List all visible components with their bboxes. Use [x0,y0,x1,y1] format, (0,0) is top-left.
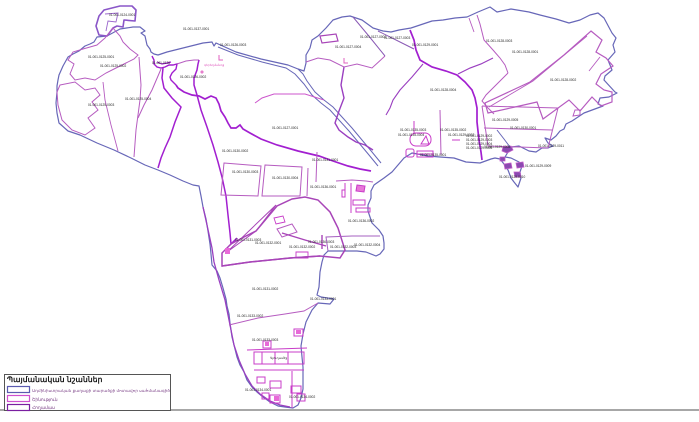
svg-text:01-001-0130-0003: 01-001-0130-0003 [232,170,258,174]
svg-text:01-001-0124-0001: 01-001-0124-0001 [109,13,135,17]
svg-text:01-001-0126: 01-001-0126 [152,61,170,65]
svg-text:01-001-0130-0001: 01-001-0130-0001 [510,126,536,130]
svg-text:01-001-0129-0010: 01-001-0129-0010 [499,175,525,179]
svg-text:01-001-0125-0002: 01-001-0125-0002 [100,64,126,68]
svg-text:01-001-0135-0001: 01-001-0135-0001 [420,153,446,157]
svg-text:01-001-0125-0003: 01-001-0125-0003 [88,103,114,107]
svg-text:01-001-0131-0002: 01-001-0131-0002 [252,287,278,291]
svg-text:01-001-0127-0001: 01-001-0127-0001 [272,126,298,130]
svg-text:01-001-0128-0003: 01-001-0128-0003 [486,39,512,43]
svg-text:Գյուղամէջ: Գյուղամէջ [270,356,287,360]
svg-text:01-001-0136-0001: 01-001-0136-0001 [310,185,336,189]
svg-text:01-001-0128-0004: 01-001-0128-0004 [430,88,456,92]
svg-text:01-001-0136-0003: 01-001-0136-0003 [308,240,334,244]
svg-text:01-001-0126-0003: 01-001-0126-0003 [220,43,246,47]
svg-text:01-001-0130-0002: 01-001-0130-0002 [222,149,248,153]
svg-text:01-001-0132-0001: 01-001-0132-0001 [255,241,281,245]
svg-text:01-001-0132-0002: 01-001-0132-0002 [289,245,315,249]
svg-text:01-001-0133-0002: 01-001-0133-0002 [237,314,263,318]
svg-text:01-001-0129-0001: 01-001-0129-0001 [412,43,438,47]
svg-text:01-001-0136-0002: 01-001-0136-0002 [348,219,374,223]
svg-text:01-001-0137-0001: 01-001-0137-0001 [183,27,209,31]
svg-text:01-001-0133-0003: 01-001-0133-0003 [252,338,278,342]
svg-text:Պայմանական նշաններ: Պայմանական նշաններ [7,375,103,384]
svg-text:01-001-0130-0004: 01-001-0130-0004 [272,176,298,180]
svg-text:01-001-0127-0003: 01-001-0127-0003 [384,36,410,40]
svg-text:01-001-0129-0011: 01-001-0129-0011 [538,144,564,148]
svg-text:01-001-0129-0007: 01-001-0129-0007 [448,133,474,137]
svg-text:Ադմինիստրական քաղաքի տարածքի մ: Ադմինիստրական քաղաքի տարածքի մոտավոր սահ… [32,388,170,393]
svg-text:Շինություն: Շինություն [32,397,58,402]
svg-text:01-001-0134-0002: 01-001-0134-0002 [289,395,315,399]
svg-text:01-001-0127-0004: 01-001-0127-0004 [335,45,361,49]
svg-text:01-001-0126-0002: 01-001-0126-0002 [180,75,206,79]
svg-text:01-001-0133-0001: 01-001-0133-0001 [310,297,336,301]
svg-text:01-001-0125-0004: 01-001-0125-0004 [125,97,151,101]
svg-text:01-001-0129-0008: 01-001-0129-0008 [484,145,510,149]
svg-text:01-001-0125-0001: 01-001-0125-0001 [88,55,114,59]
svg-text:01-001-0132-0004: 01-001-0132-0004 [354,243,380,247]
svg-text:01-001-0127-0002: 01-001-0127-0002 [360,35,386,39]
svg-text:01-001-0135-0002: 01-001-0135-0002 [440,128,466,132]
svg-text:01-001-0132-0003: 01-001-0132-0003 [330,245,356,249]
svg-text:01-001-0129-0009: 01-001-0129-0009 [525,164,551,168]
svg-text:01-001-0128-0001: 01-001-0128-0001 [512,50,538,54]
svg-text:Հողամաս: Հողամաս [32,405,55,410]
svg-text:01-001-0134-0001: 01-001-0134-0001 [245,388,271,392]
svg-text:01-001-0129-0005: 01-001-0129-0005 [492,118,518,122]
svg-text:01-001-0135-0003: 01-001-0135-0003 [400,128,426,132]
svg-text:01-001-0131-0001: 01-001-0131-0001 [312,158,338,162]
svg-text:01-001-0128-0002: 01-001-0128-0002 [550,78,576,82]
svg-text:01-001-0135-0004: 01-001-0135-0004 [398,133,424,137]
svg-text:գերեզմանոց: գերեզմանոց [204,63,224,67]
